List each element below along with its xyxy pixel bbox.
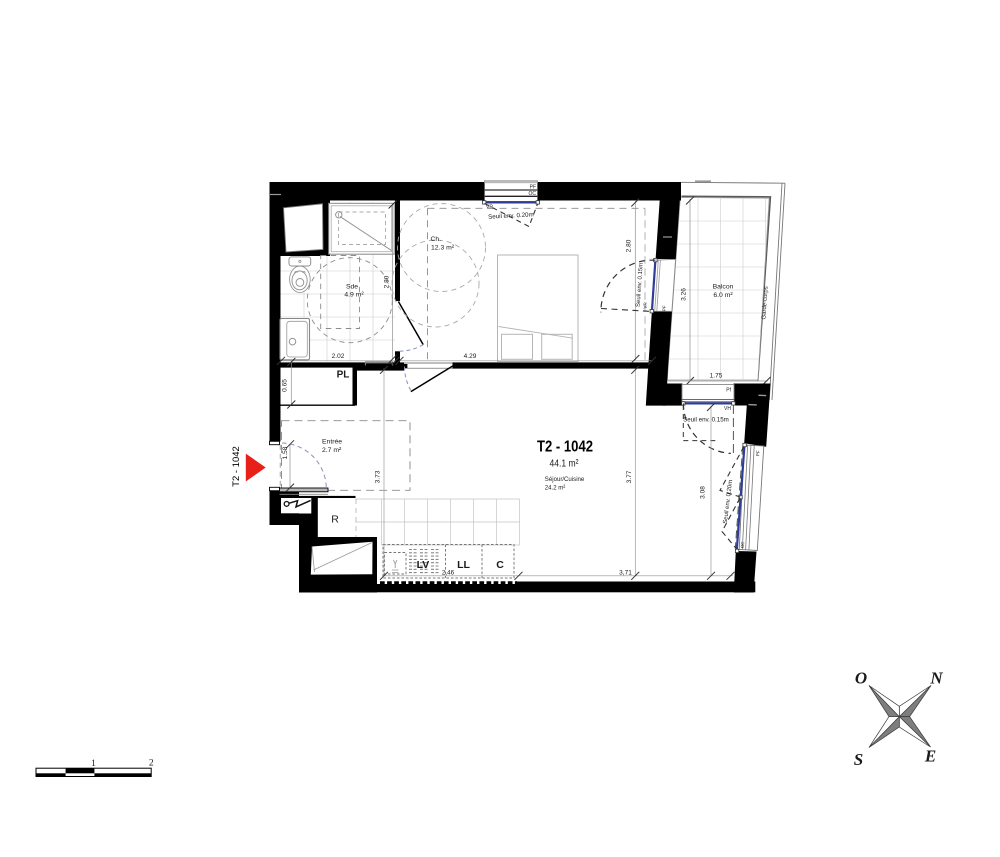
svg-text:44.1 m²: 44.1 m² [550,459,580,470]
svg-text:3.08: 3.08 [700,486,707,499]
svg-text:4.9 m²: 4.9 m² [344,292,364,299]
svg-text:2,46: 2,46 [442,569,455,576]
svg-text:T2 - 1042: T2 - 1042 [537,439,593,456]
svg-text:PF: PF [755,450,760,456]
svg-text:2.80: 2.80 [626,239,633,252]
svg-text:1: 1 [91,759,96,769]
svg-text:PF: PF [530,185,536,191]
svg-text:1.58: 1.58 [282,446,289,459]
svg-text:LV: LV [417,559,430,571]
svg-text:LL: LL [457,559,470,571]
svg-text:E: E [924,747,936,766]
svg-text:S: S [854,750,863,769]
svg-text:2.7 m²: 2.7 m² [322,447,342,454]
svg-text:2: 2 [149,759,154,769]
svg-text:1.75: 1.75 [710,373,723,380]
svg-text:4.29: 4.29 [464,353,477,360]
svg-text:24.2 m²: 24.2 m² [545,485,566,492]
svg-text:Sde: Sde [346,284,358,291]
svg-text:Séjour/Cuisine: Séjour/Cuisine [545,476,585,483]
svg-text:O: O [855,669,867,688]
svg-text:VR: VR [643,301,648,308]
svg-text:2.80: 2.80 [383,275,390,288]
svg-text:T2 - 1042: T2 - 1042 [231,446,242,487]
svg-text:3.77: 3.77 [626,470,633,483]
svg-text:R: R [331,514,339,526]
svg-text:PF: PF [662,305,667,311]
svg-text:C: C [496,559,504,571]
svg-text:Entrée: Entrée [322,439,342,446]
svg-text:12.3 m²: 12.3 m² [431,245,455,252]
svg-text:0.65: 0.65 [282,379,289,392]
svg-text:Ch.: Ch. [431,236,442,243]
svg-text:2.02: 2.02 [332,353,345,360]
svg-text:OC: OC [529,191,537,197]
svg-text:3.26: 3.26 [680,288,687,301]
svg-text:Balcon: Balcon [713,284,734,291]
svg-text:VH: VH [724,406,731,412]
svg-text:Pf: Pf [726,388,731,394]
svg-text:6.0 m²: 6.0 m² [713,292,733,299]
svg-text:PL: PL [337,370,350,381]
svg-text:3,71: 3,71 [619,570,632,577]
svg-text:3.73: 3.73 [375,470,382,483]
svg-text:Seuil env. 0.15m: Seuil env. 0.15m [683,417,729,424]
svg-text:OC: OC [740,541,745,548]
svg-text:N: N [929,669,943,688]
